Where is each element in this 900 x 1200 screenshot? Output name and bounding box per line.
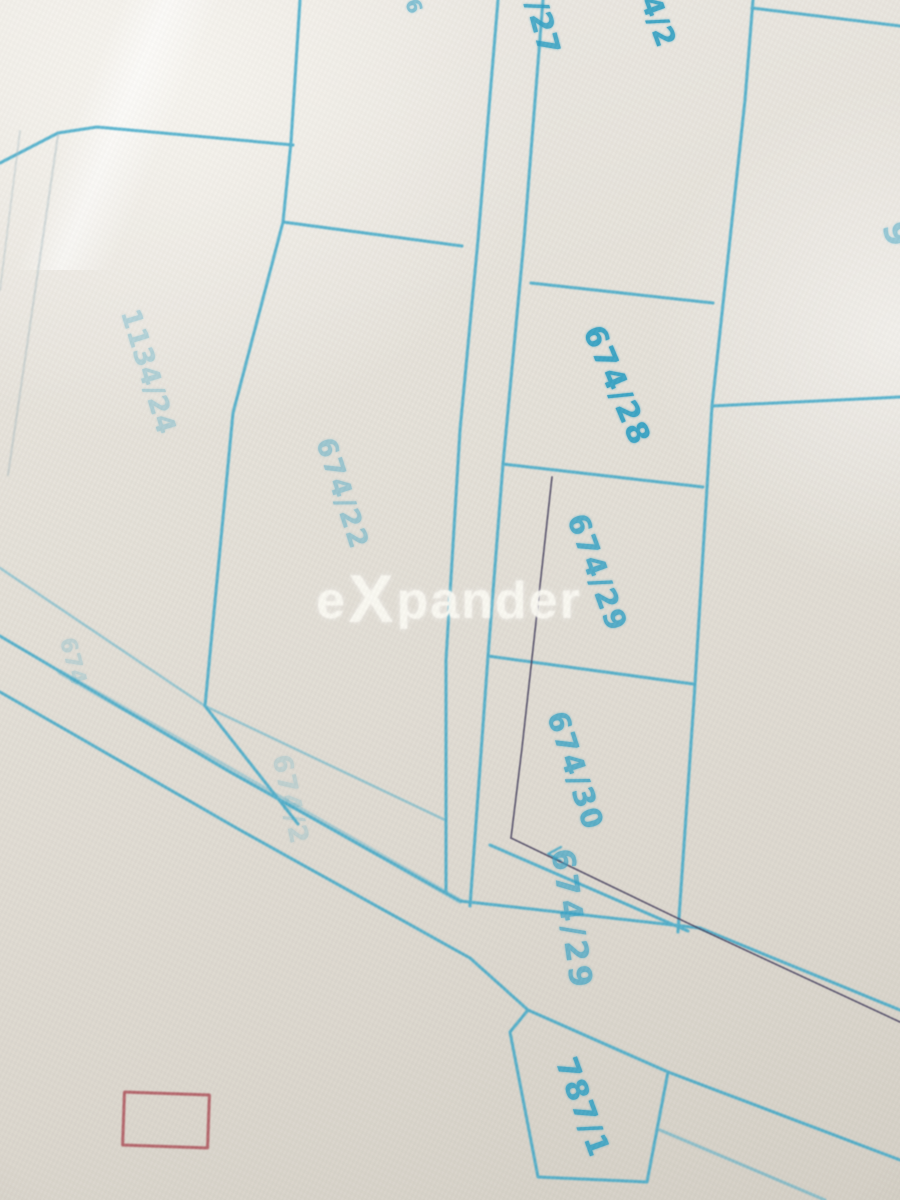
topleft-parcel-top-edge	[0, 127, 293, 163]
parcel-boundary-drawing	[0, 0, 900, 1200]
parcel-674-22-left-boundary	[205, 0, 300, 824]
dark-survey-line-vertical	[511, 477, 552, 838]
road-lower-second-line	[660, 1130, 825, 1200]
topleft-strip-line-b	[0, 131, 20, 290]
road-upper-line	[0, 636, 900, 1010]
left-long-diagonal-boundary	[0, 568, 445, 820]
road-upper-thick-band	[60, 672, 460, 901]
cadastral-map-photo: /274/261134/24674/22674/28674/29674/3067…	[0, 0, 900, 1200]
parcel-674-29-bottom-edge	[488, 656, 693, 684]
road-strip-right-line	[470, 0, 543, 906]
road-lower-line	[0, 692, 900, 1160]
topleft-strip-line-a	[8, 135, 58, 475]
right-top-horizontal-edge	[752, 8, 900, 26]
right-mid-horizontal-edge	[712, 397, 900, 406]
right-vertical-boundary	[678, 0, 753, 932]
parcel-674-22-top-boundary	[283, 222, 462, 246]
road-strip-left-line	[446, 0, 498, 893]
parcel-674-28-top-edge	[531, 283, 713, 303]
parcel-674-28-bottom-edge	[503, 464, 703, 487]
